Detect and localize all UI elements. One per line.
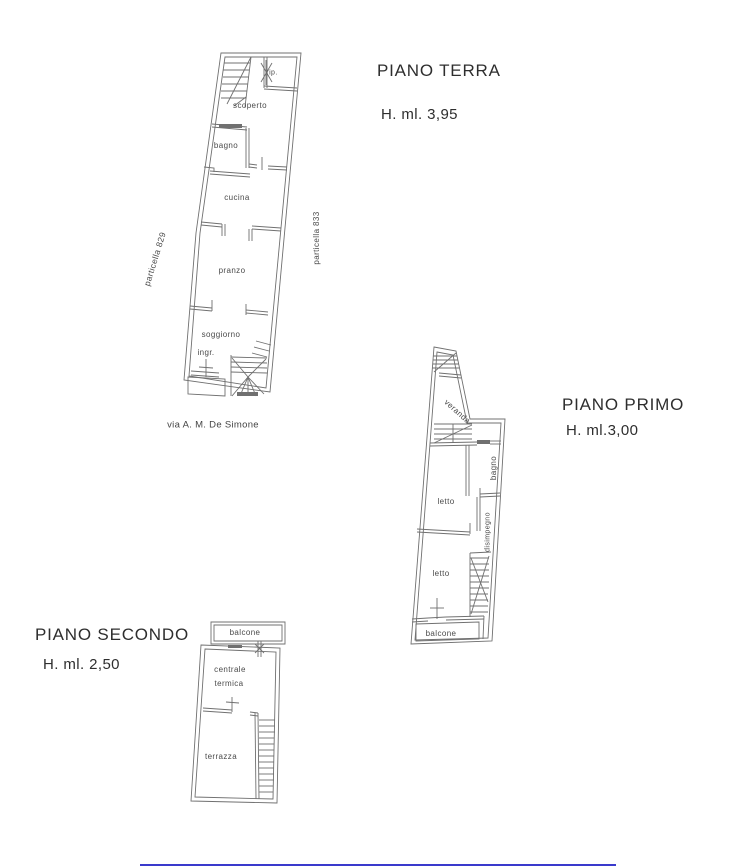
bottom-rule	[140, 864, 616, 866]
room-label-disimpegno: disimpegno	[485, 512, 492, 552]
piano-primo-linework	[411, 347, 505, 644]
piano-primo-height: H. ml.3,00	[566, 422, 638, 439]
parcel-833-label: particella 833	[313, 211, 321, 264]
street-label: via A. M. De Simone	[167, 420, 259, 431]
piano-primo-title: PIANO PRIMO	[562, 395, 684, 415]
floor-plan-sheet: PIANO TERRA H. ml. 3,95 PIANO PRIMO H. m…	[0, 0, 746, 867]
room-label-balcone-p2: balcone	[230, 629, 261, 637]
room-label-letto-2: letto	[432, 570, 449, 578]
room-label-bagno-p1: bagno	[490, 456, 498, 480]
piano-terra-title: PIANO TERRA	[377, 61, 501, 81]
room-label-cucina: cucina	[224, 194, 250, 202]
room-label-bagno-pt: bagno	[214, 142, 238, 150]
room-label-letto-1: letto	[437, 498, 454, 506]
piano-terra-height: H. ml. 3,95	[381, 106, 458, 123]
piano-secondo-linework	[191, 622, 285, 803]
room-label-termica: termica	[214, 680, 243, 688]
room-label-scoperto: scoperto	[233, 102, 267, 110]
room-label-balcone-p1: balcone	[426, 630, 457, 638]
room-label-soggiorno: soggiorno	[202, 331, 241, 339]
room-label-ingr: ingr.	[197, 349, 214, 357]
room-label-rip: rip.	[266, 70, 277, 77]
piano-secondo-height: H. ml. 2,50	[43, 656, 120, 673]
piano-secondo-title: PIANO SECONDO	[35, 625, 189, 645]
room-label-centrale: centrale	[214, 666, 246, 674]
room-label-terrazza: terrazza	[205, 753, 237, 761]
room-label-pranzo: pranzo	[219, 267, 246, 275]
